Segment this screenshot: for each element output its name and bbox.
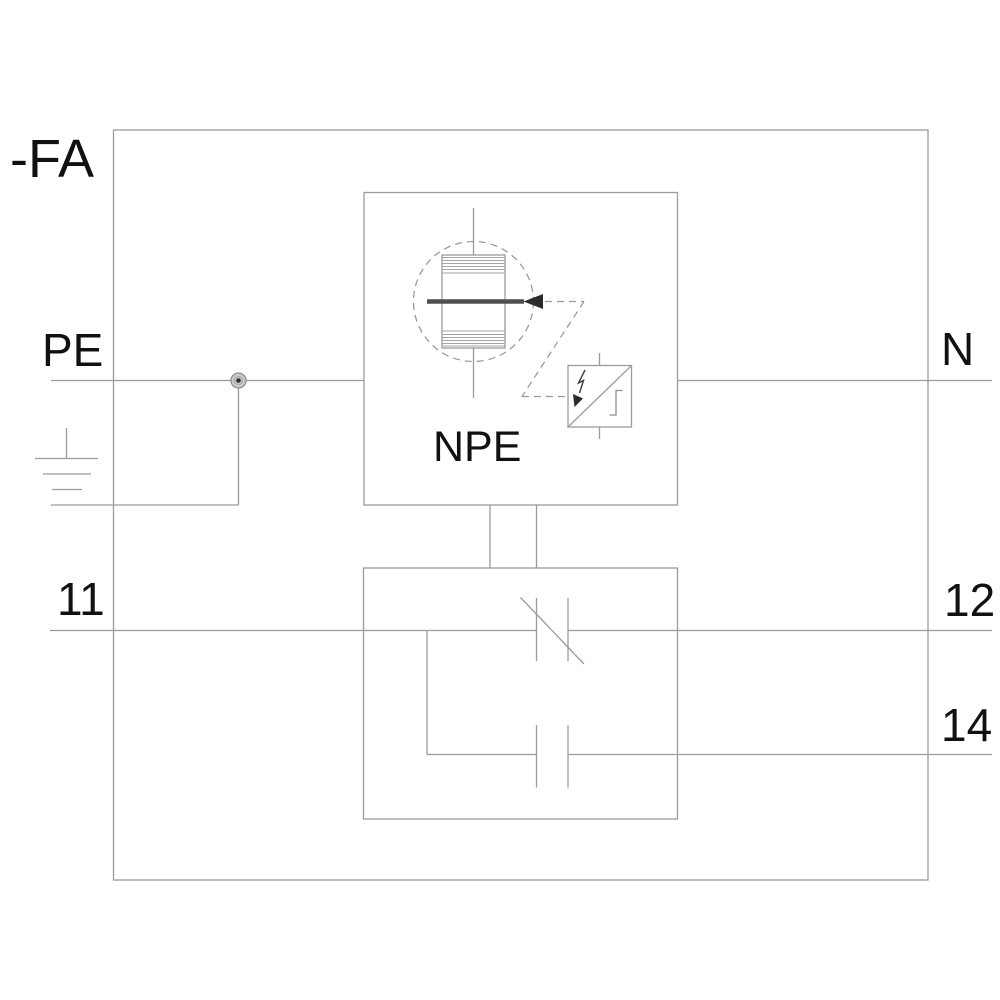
no-make-contact-icon bbox=[537, 725, 569, 788]
terminal-pe-label: PE bbox=[42, 324, 103, 376]
junction-dot bbox=[231, 373, 246, 388]
npe-module-label: NPE bbox=[433, 423, 521, 471]
device-tag-label: -FA bbox=[10, 129, 94, 189]
earth-ground-icon bbox=[35, 428, 98, 490]
schematic-page: -FA PE N 11 12 14 NPE bbox=[0, 0, 1000, 1000]
terminal-11-label: 11 bbox=[57, 573, 105, 625]
surge-disconnector-icon bbox=[568, 353, 632, 439]
terminal-12-label: 12 bbox=[944, 574, 995, 626]
lightning-arrow-icon bbox=[573, 370, 585, 407]
electrode-hatch-bottom bbox=[442, 331, 505, 346]
electrode-hatch-top bbox=[442, 258, 505, 274]
schematic-canvas: -FA PE N 11 12 14 NPE bbox=[0, 0, 1000, 1000]
terminal-14-label: 14 bbox=[941, 699, 992, 751]
auxiliary-contact-box bbox=[364, 568, 678, 819]
terminal-n-label: N bbox=[941, 323, 974, 375]
spark-gap-arrester-icon bbox=[414, 208, 544, 398]
reset-step-glyph bbox=[610, 391, 623, 416]
